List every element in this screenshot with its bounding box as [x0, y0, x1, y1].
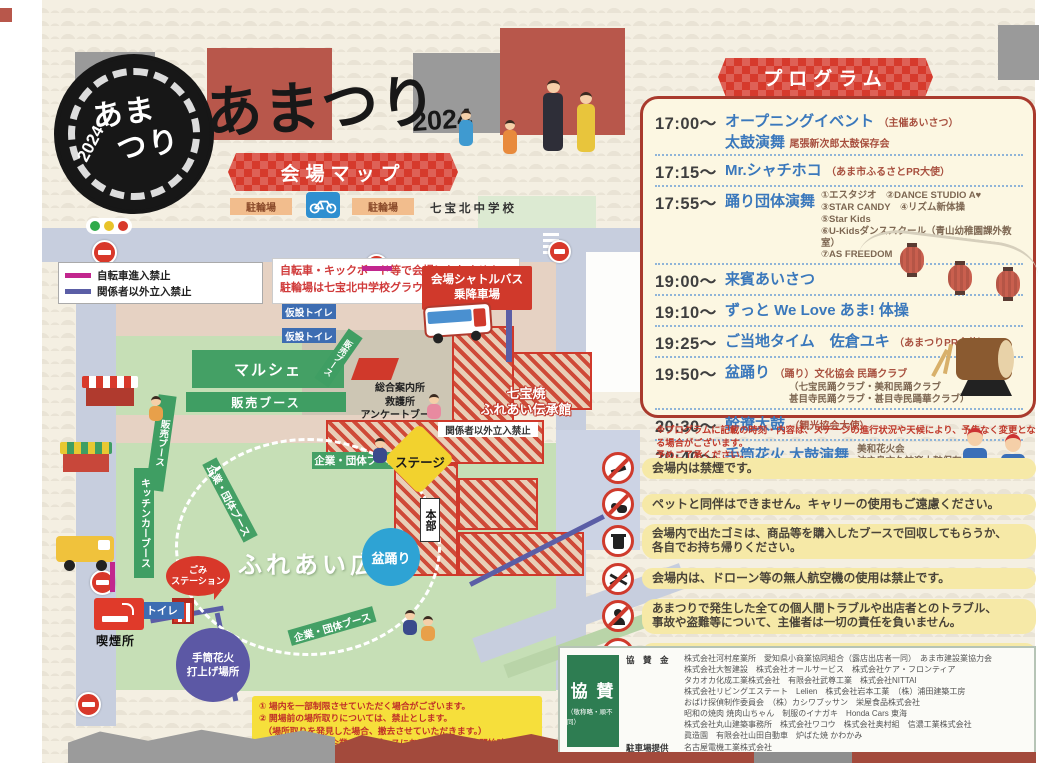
hq-label: 本部	[420, 498, 440, 542]
lantern-icon	[900, 246, 924, 274]
sponsors-label: 協 賛	[571, 677, 616, 702]
bonodori-circle: 盆踊り	[362, 528, 420, 586]
program-note: （踊り）文化協会 民踊クラブ	[774, 369, 907, 380]
boy-head	[461, 110, 471, 120]
drum-illustration	[938, 330, 1018, 402]
site-note-line: ② 開場前の場所取りについては、禁止とします。	[259, 712, 535, 724]
girl-body	[503, 130, 517, 154]
no-drone-icon	[602, 563, 634, 595]
truck-wheel	[96, 560, 107, 571]
notice-text: 会場内で出たゴミは、商品等を購入したブースで回収してもらうか、 各自でお持ち帰り…	[642, 524, 1036, 559]
decor-red-mark	[0, 8, 12, 22]
program-row: 17:00〜 オープニングイベント （主催あいさつ） 太鼓演舞 尾張新次郎太鼓保…	[655, 107, 1023, 156]
program-title: 盆踊り	[725, 364, 770, 381]
cigarette-icon	[102, 616, 128, 622]
sponsors-label-block: 協 賛 （敬称略・順不同）	[567, 655, 619, 747]
kitchen-car-illustration	[56, 536, 116, 574]
temp-toilet-label: 仮設トイレ	[282, 304, 336, 319]
program-title: 踊り団体演舞	[725, 190, 815, 261]
visitor-head	[375, 438, 385, 448]
program-time: 19:50〜	[655, 361, 725, 385]
food-stall	[60, 442, 112, 476]
sponsor-line: タカオカ化成工業株式会社 有限会社武尊工業 株式会社NITTAI	[684, 675, 1031, 686]
program-title: Mr.シャチホコ	[725, 162, 822, 179]
visitor-figure	[402, 610, 418, 635]
bus-wheel	[471, 330, 482, 341]
sponsor-line: 株式会社リビングエステート Lelien 株式会社岩本工業 （株）浦田建築工房	[684, 686, 1031, 697]
sales-booth-label: 販売ブース	[186, 392, 346, 412]
sponsor-line: 株式会社大智建設 株式会社オールサービス 株式会社ケア・フロンティア	[684, 664, 1031, 675]
building-hatched	[458, 478, 538, 530]
visitor-figure	[426, 394, 442, 419]
program-title: ご当地タイム 佐倉ユキ	[725, 333, 890, 350]
lantern-icon	[996, 270, 1020, 298]
program-title: ずっと We Love あま! 体操	[725, 302, 909, 319]
program-time: 19:10〜	[655, 299, 725, 323]
restricted-area-label: 関係者以外立入禁止	[438, 422, 538, 437]
family-illustration	[450, 72, 610, 177]
stall-awning	[82, 376, 138, 388]
drum-stand	[960, 380, 1012, 396]
vendor-head	[151, 396, 161, 406]
no-pets-icon	[602, 488, 634, 520]
no-entry-icon	[76, 692, 101, 717]
bike-parking-left: 駐輪場	[230, 198, 292, 215]
legend-bike-line	[65, 273, 91, 278]
visitor-figure	[420, 616, 436, 641]
fireworks-line1: 手筒花火	[192, 651, 234, 665]
visitor-head	[429, 394, 439, 404]
girl-figure	[502, 120, 518, 154]
visitor-body	[427, 404, 441, 419]
program-time: 17:00〜	[655, 110, 725, 134]
father-figure	[542, 80, 564, 151]
vendor-figure	[148, 396, 164, 421]
visitor-head	[405, 610, 415, 620]
sponsor-line: 昭和の焼肉 焼肉山ちゃん 制服のイナガキ Honda Cars 東海	[684, 708, 1031, 719]
notice-text: ペットと同伴はできません。キャリーの使用もご遠慮ください。	[642, 494, 1036, 515]
no-entry-icon	[548, 240, 571, 263]
program-banner: プログラム	[718, 58, 933, 96]
mother-figure	[576, 92, 596, 152]
program-time: 17:15〜	[655, 159, 725, 183]
notice-row: あまつりで発生した全ての個人間トラブルや出店者とのトラブル、 事故や盗難等につい…	[602, 599, 1036, 634]
no-smoking-icon	[602, 452, 634, 484]
notice-text: 会場内は、ドローン等の無人航空機の使用は禁止です。	[642, 568, 1036, 589]
bus-wheel	[433, 333, 444, 344]
program-title: オープニングイベント	[725, 113, 874, 130]
bike-parking-right: 駐輪場	[352, 198, 414, 215]
fireworks-area-label: 手筒花火 打上げ場所	[176, 628, 250, 702]
father-head	[547, 80, 560, 93]
program-time: 19:25〜	[655, 330, 725, 354]
food-stall	[82, 376, 138, 410]
bus-illustration	[423, 298, 494, 347]
shuttle-line1: 会場シャトルバス	[431, 273, 523, 288]
sponsor-line: おばけ探偵制作委員会 （株）カシワブッサン 栄屋食品株式会社	[684, 697, 1031, 708]
sponsor-line: 眞造園 有限会社山田自動車 炉ばた焼 かわかみ	[684, 730, 1031, 741]
no-theft-icon	[602, 600, 634, 632]
temp-toilet-label: 仮設トイレ	[282, 328, 336, 343]
decor-gray-strip	[754, 752, 852, 763]
denshokan-label: 七宝焼 ふれあい伝承館	[466, 386, 586, 419]
visitor-body	[421, 626, 435, 641]
sponsors-box: 協 賛 （敬称略・順不同） 協 賛 金 株式会社河村産業所 愛知県小商業協同組合…	[558, 646, 1036, 756]
drum-face	[998, 340, 1014, 378]
visitor-figure	[372, 438, 388, 463]
site-note-line: ① 場内を一部制限させていただく場合がございます。	[259, 700, 535, 712]
legend-staff-line	[65, 289, 91, 294]
sponsor-line: 株式会社丸山建築事務所 株式会社ワコウ 株式会社奥村組 信濃工業株式会社	[684, 719, 1031, 730]
traffic-light-icon	[86, 218, 132, 234]
info-booth-marker	[351, 358, 399, 380]
map-banner: 会場マップ	[228, 153, 458, 191]
map-legend: 自転車進入禁止 関係者以外立入禁止	[58, 262, 263, 304]
trash-station-tail	[214, 590, 222, 600]
school-name: 七宝北中学校	[430, 200, 517, 216]
program-banner-label: プログラム	[763, 64, 887, 91]
trash-station-line1: ごみ	[189, 565, 207, 576]
page-title: あまつり	[203, 56, 439, 150]
stage-label: ステージ	[386, 452, 454, 471]
visitor-head	[423, 616, 433, 626]
program-time: 17:55〜	[655, 190, 725, 214]
program-note2: 尾張新次郎太鼓保存会	[789, 139, 889, 150]
boy-body	[459, 120, 473, 146]
smoking-area-icon	[94, 598, 144, 630]
toilet-label: トイレ	[140, 602, 184, 619]
notice-text: 会場内は禁煙です。	[642, 458, 1036, 479]
mother-head	[580, 92, 592, 104]
trash-station-line2: ステーション	[171, 576, 225, 587]
program-detail: ①エスタジオ ②DANCE STUDIO A♥	[821, 190, 1023, 202]
map-white-building	[586, 252, 640, 392]
denshokan-line1: 七宝焼	[466, 386, 586, 402]
stall-awning	[60, 442, 112, 454]
smoke-icon	[122, 603, 134, 615]
visitor-body	[373, 448, 387, 463]
festival-logo: あま つり 2024	[58, 58, 210, 210]
program-note: （あま市ふるさとPR大使）	[826, 167, 950, 178]
sponsors-content: 協 賛 金 株式会社河村産業所 愛知県小商業協同組合（露店出店者一同） あま市建…	[626, 653, 1031, 754]
visitor-body	[403, 620, 417, 635]
notices-list: 会場内は禁煙です。 ペットと同伴はできません。キャリーの使用もご遠慮ください。 …	[602, 452, 1036, 674]
notice-row: 会場内は、ドローン等の無人航空機の使用は禁止です。	[602, 563, 1036, 595]
bicycle-icon	[306, 192, 340, 218]
girl-head	[505, 120, 515, 130]
no-bike-line-segment	[362, 266, 392, 271]
program-detail: ⑤Star Kids	[821, 214, 1023, 226]
mascot-head	[967, 428, 983, 446]
notice-text: あまつりで発生した全ての個人間トラブルや出店者とのトラブル、 事故や盗難等につい…	[642, 599, 1036, 634]
kitchen-car-booth-label: キッチンカーブース	[134, 468, 154, 578]
sponsor-line: 株式会社河村産業所 愛知県小商業協同組合（露店出店者一同） あま市建設業協力会	[684, 653, 1031, 664]
program-title: 来賓あいさつ	[725, 271, 815, 288]
map-banner-label: 会場マップ	[280, 159, 405, 186]
decor-gray-block	[998, 25, 1039, 80]
program-time: 19:00〜	[655, 268, 725, 292]
fireworks-line2: 打上げ場所	[187, 665, 240, 679]
legend-bike-label: 自転車進入禁止	[97, 268, 171, 283]
notice-row: ペットと同伴はできません。キャリーの使用もご遠慮ください。	[602, 488, 1036, 520]
program-note: （主催あいさつ）	[879, 118, 959, 129]
mother-body	[577, 104, 595, 152]
lantern-icon	[948, 264, 972, 292]
program-title2: 太鼓演舞	[725, 134, 785, 151]
sponsors-label-note: （敬称略・順不同）	[567, 706, 619, 726]
sponsors-names: 株式会社河村産業所 愛知県小商業協同組合（露店出店者一同） あま市建設業協力会 …	[684, 653, 1031, 741]
vendor-body	[149, 406, 163, 421]
notice-row: 会場内は禁煙です。	[602, 452, 1036, 484]
legend-staff-label: 関係者以外立入禁止	[97, 284, 192, 299]
decor-red-strip	[558, 752, 754, 763]
truck-wheel	[64, 560, 75, 571]
bus-front	[473, 308, 486, 327]
program-detail: ③STAR CANDY ④リズム新体操	[821, 202, 1023, 214]
mascot-head	[1005, 434, 1021, 452]
festival-flyer: あま つり 2024 あまつり 2024 会場マップ 駐輪場 駐輪場 七宝	[0, 0, 1039, 770]
father-body	[543, 93, 563, 151]
program-row: 19:10〜 ずっと We Love あま! 体操	[655, 296, 1023, 327]
decor-red-strip	[852, 752, 1036, 763]
logo-text-line2: つり	[113, 116, 183, 168]
program-row: 17:15〜 Mr.シャチホコ （あま市ふるさとPR大使）	[655, 156, 1023, 187]
stall-counter	[86, 388, 134, 406]
boy-figure	[458, 110, 474, 146]
stall-counter	[63, 454, 109, 472]
trash-icon	[602, 525, 634, 557]
sponsors-money-label: 協 賛 金	[626, 653, 678, 741]
smoking-area-label: 喫煙所	[96, 632, 135, 649]
truck-window	[98, 540, 110, 550]
notice-row: 会場内で出たゴミは、商品等を購入したブースで回収してもらうか、 各自でお持ち帰り…	[602, 524, 1036, 559]
denshokan-line2: ふれあい伝承館	[466, 402, 586, 418]
